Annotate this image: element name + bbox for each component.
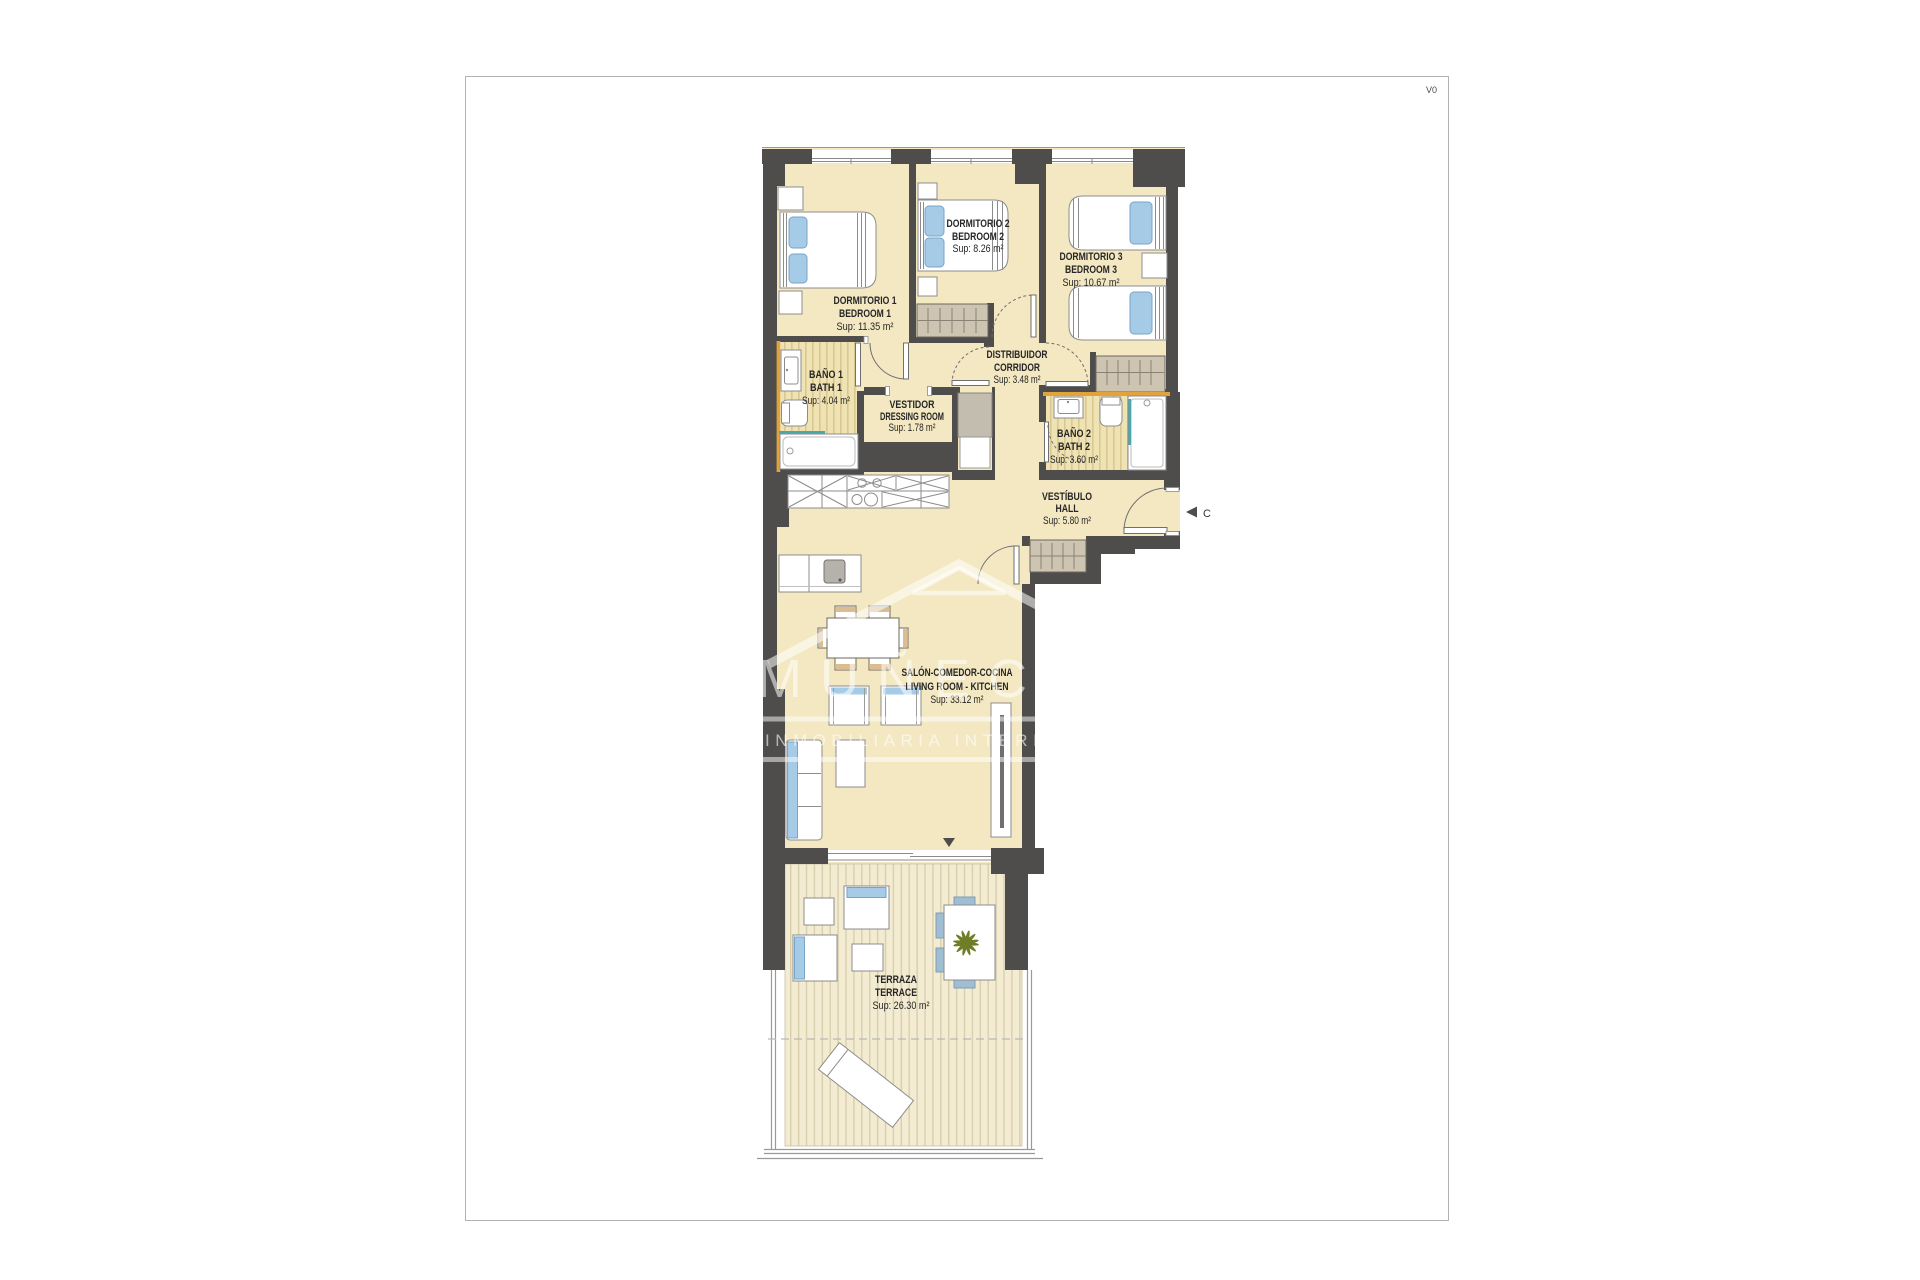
svg-text:C: C: [1203, 508, 1211, 520]
svg-text:BATH 1: BATH 1: [810, 382, 842, 394]
svg-text:BAÑO 1: BAÑO 1: [809, 368, 843, 381]
svg-text:DORMITORIO 2: DORMITORIO 2: [947, 218, 1010, 230]
svg-text:DORMITORIO 1: DORMITORIO 1: [834, 295, 897, 307]
svg-text:Sup: 11.35 m²: Sup: 11.35 m²: [837, 321, 894, 333]
svg-text:LIVING ROOM - KITCHEN: LIVING ROOM - KITCHEN: [906, 681, 1009, 693]
svg-text:VESTIDOR: VESTIDOR: [890, 399, 935, 411]
svg-text:Sup: 26.30 m²: Sup: 26.30 m²: [873, 1000, 930, 1012]
svg-text:DORMITORIO 3: DORMITORIO 3: [1060, 251, 1123, 263]
svg-text:Sup: 33.12 m²: Sup: 33.12 m²: [931, 694, 984, 706]
svg-text:Sup: 8.26 m²: Sup: 8.26 m²: [953, 243, 1004, 255]
svg-text:BEDROOM 3: BEDROOM 3: [1065, 264, 1117, 276]
svg-text:TERRACE: TERRACE: [875, 987, 917, 999]
svg-text:Sup: 3.48 m²: Sup: 3.48 m²: [994, 374, 1041, 386]
svg-text:BEDROOM 2: BEDROOM 2: [952, 231, 1004, 243]
svg-text:CORRIDOR: CORRIDOR: [994, 362, 1040, 374]
svg-text:Sup: 3.60 m²: Sup: 3.60 m²: [1050, 454, 1098, 466]
svg-text:BAÑO 2: BAÑO 2: [1057, 427, 1091, 440]
svg-text:Sup: 10.67 m²: Sup: 10.67 m²: [1063, 277, 1120, 289]
svg-text:V0: V0: [1426, 85, 1437, 95]
svg-text:SALÓN-COMEDOR-COCINA: SALÓN-COMEDOR-COCINA: [902, 666, 1013, 679]
svg-text:BATH 2: BATH 2: [1058, 441, 1090, 453]
svg-text:HALL: HALL: [1056, 503, 1079, 515]
svg-text:TERRAZA: TERRAZA: [875, 974, 917, 986]
svg-text:Sup: 4.04 m²: Sup: 4.04 m²: [802, 395, 850, 407]
svg-text:VESTÍBULO: VESTÍBULO: [1042, 490, 1092, 503]
svg-text:Sup: 1.78 m²: Sup: 1.78 m²: [889, 422, 936, 434]
svg-text:BEDROOM 1: BEDROOM 1: [839, 308, 891, 320]
svg-text:Sup: 5.80 m²: Sup: 5.80 m²: [1043, 515, 1091, 527]
svg-text:DISTRIBUIDOR: DISTRIBUIDOR: [987, 349, 1048, 361]
